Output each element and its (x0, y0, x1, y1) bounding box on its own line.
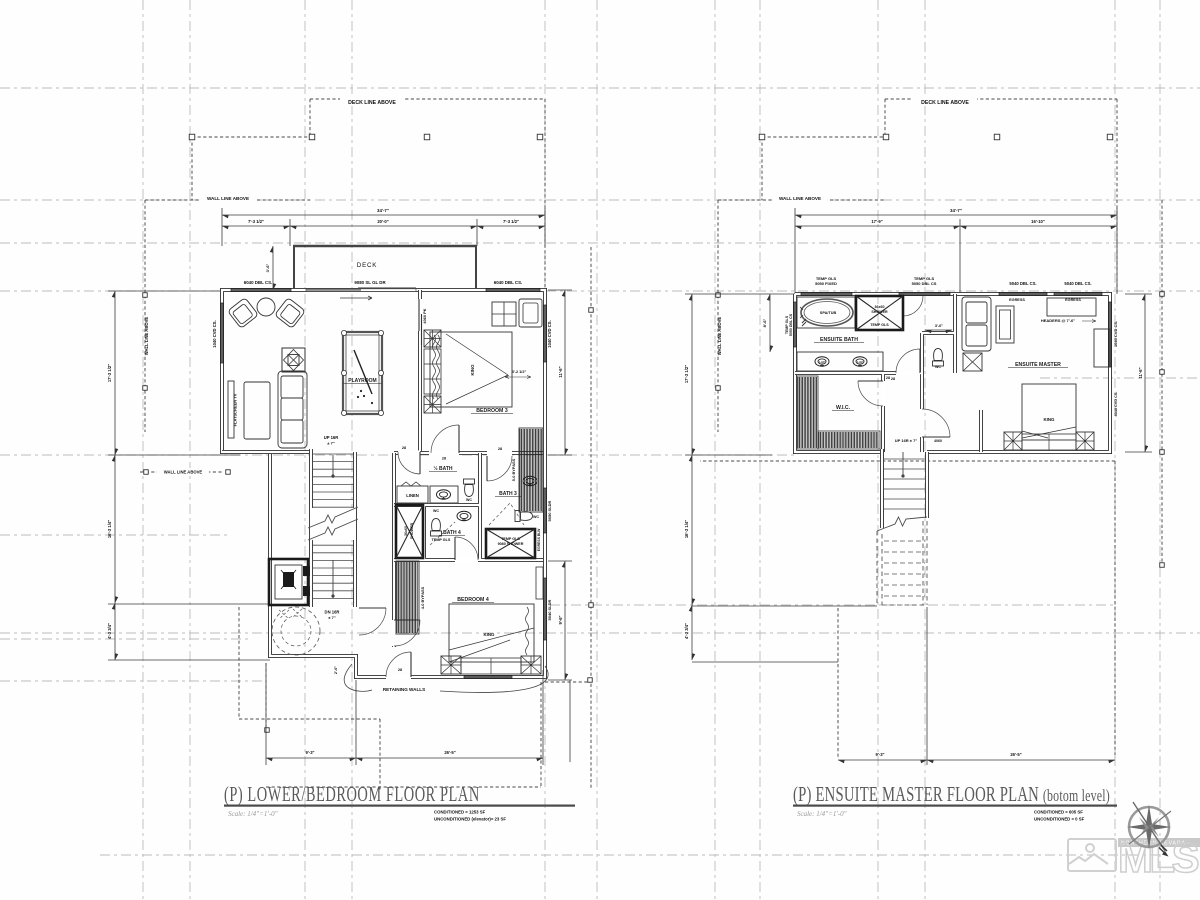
svg-text:28: 28 (442, 457, 446, 461)
svg-text:WC: WC (433, 509, 439, 513)
svg-text:WALL LINE ABOVE: WALL LINE ABOVE (779, 196, 821, 201)
svg-text:TEMP GLS: TEMP GLS (432, 538, 451, 542)
svg-text:9080 SL GL DR: 9080 SL GL DR (354, 280, 386, 285)
svg-text:5040 SLDR: 5040 SLDR (547, 599, 552, 620)
svg-text:WC: WC (533, 515, 539, 519)
svg-text:KING: KING (484, 632, 496, 637)
svg-text:9'-6": 9'-6" (558, 615, 563, 624)
svg-text:4'-3 3/4": 4'-3 3/4" (684, 623, 689, 639)
svg-text:28: 28 (498, 447, 502, 451)
svg-text:3'-6": 3'-6" (935, 324, 943, 328)
svg-text:3'-6": 3'-6" (265, 264, 270, 273)
svg-text:KING: KING (470, 364, 475, 376)
svg-text:36x60: 36x60 (404, 526, 408, 536)
svg-text:7'-3 1/2": 7'-3 1/2" (248, 219, 264, 224)
svg-text:4040 CVD CS.: 4040 CVD CS. (1114, 392, 1118, 417)
svg-text:EGRESS BLW: EGRESS BLW (537, 528, 541, 551)
svg-text:UP 16R ± 7": UP 16R ± 7" (895, 438, 918, 443)
svg-text:6040 DBL CS.: 6040 DBL CS. (244, 280, 272, 285)
svg-text:20'-0": 20'-0" (377, 219, 388, 224)
svg-text:FLATSCREEN TV: FLATSCREEN TV (233, 393, 238, 426)
svg-text:Scale: 1/4"=1'-0": Scale: 1/4"=1'-0" (797, 810, 847, 818)
svg-text:17'-3 1/2": 17'-3 1/2" (684, 365, 689, 383)
svg-text:5050 DBL CS: 5050 DBL CS (912, 281, 937, 286)
svg-text:17'-9": 17'-9" (871, 219, 882, 224)
svg-text:WALL LINE ABOVE: WALL LINE ABOVE (164, 470, 203, 475)
svg-text:5050 DBL CS: 5050 DBL CS (789, 313, 793, 336)
svg-text:TEMP GLS: TEMP GLS (501, 537, 520, 541)
svg-text:28: 28 (402, 446, 406, 450)
svg-text:WALL LINE ABOVE: WALL LINE ABOVE (717, 317, 722, 356)
svg-text:DECK LINE ABOVE: DECK LINE ABOVE (921, 100, 969, 106)
svg-text:Scale: 1/4"=1'-0": Scale: 1/4"=1'-0" (228, 810, 278, 818)
svg-text:34'-7": 34'-7" (950, 208, 962, 213)
svg-text:36x60: 36x60 (875, 305, 885, 309)
svg-text:LAV: LAV (819, 360, 825, 364)
svg-text:RETAINING WALLS: RETAINING WALLS (383, 687, 425, 692)
svg-text:DECK: DECK (357, 262, 377, 269)
svg-text:11'-6": 11'-6" (558, 366, 563, 377)
svg-text:5-0 BYPASS: 5-0 BYPASS (511, 458, 516, 481)
svg-text:TEMP GLS: TEMP GLS (870, 323, 889, 327)
svg-text:± 7": ± 7" (327, 441, 335, 446)
svg-text:5050 FIXED: 5050 FIXED (815, 281, 837, 286)
svg-text:4-0 BYPASS: 4-0 BYPASS (420, 586, 425, 609)
svg-text:16'-3 1/4": 16'-3 1/4" (107, 520, 112, 538)
svg-text:34'-7": 34'-7" (377, 208, 389, 213)
svg-text:5040 DBL CS.: 5040 DBL CS. (1064, 281, 1091, 286)
svg-text:1040 CVD CS.: 1040 CVD CS. (547, 320, 552, 347)
svg-text:WALL LINE ABOVE: WALL LINE ABOVE (144, 317, 149, 356)
svg-text:7'-3 1/2": 7'-3 1/2" (503, 219, 519, 224)
svg-text:28: 28 (886, 376, 890, 380)
svg-text:½ BATH: ½ BATH (433, 465, 452, 472)
svg-text:DECK LINE ABOVE: DECK LINE ABOVE (348, 100, 396, 106)
svg-text:5050 SLDR: 5050 SLDR (547, 500, 552, 521)
svg-text:8'-6": 8'-6" (762, 319, 767, 328)
svg-text:4'-3 3/4": 4'-3 3/4" (107, 623, 112, 639)
svg-text:16'-10": 16'-10" (1031, 219, 1045, 224)
svg-text:26'-5": 26'-5" (1010, 752, 1021, 757)
svg-text:1040 CVD CS.: 1040 CVD CS. (212, 320, 217, 347)
svg-text:16'-3 1/4": 16'-3 1/4" (684, 520, 689, 538)
svg-text:SPA/TUB: SPA/TUB (820, 311, 837, 315)
svg-text:WC: WC (466, 498, 472, 502)
svg-text:LINEN: LINEN (406, 493, 419, 498)
svg-text:4060 PK: 4060 PK (422, 308, 427, 323)
svg-text:2'-6": 2'-6" (334, 666, 338, 674)
svg-text:WC: WC (935, 365, 941, 369)
svg-text:5040 DBL CS.: 5040 DBL CS. (1009, 281, 1036, 286)
svg-text:KING: KING (1044, 417, 1056, 422)
svg-text:SHOWER: SHOWER (410, 523, 414, 540)
svg-text:WALL LINE ABOVE: WALL LINE ABOVE (207, 196, 249, 201)
svg-text:28: 28 (891, 377, 895, 381)
svg-text:SHOWER: SHOWER (871, 310, 888, 314)
svg-text:EGRESS: EGRESS (1009, 298, 1025, 302)
svg-text:(P) LOWER/BEDROOM FLOOR PLAN: (P) LOWER/BEDROOM FLOOR PLAN (224, 782, 480, 806)
svg-text:UNCONDITIONED = 0 SF: UNCONDITIONED = 0 SF (1034, 817, 1085, 822)
svg-text:17'-3 1/2": 17'-3 1/2" (107, 364, 112, 382)
svg-text:6040 DBL CS.: 6040 DBL CS. (494, 280, 522, 285)
svg-text:1040 CVD CS.: 1040 CVD CS. (1113, 321, 1118, 347)
svg-text:UNCONDITIONED (elevator)= 23 S: UNCONDITIONED (elevator)= 23 SF (434, 817, 506, 822)
svg-text:11'-6": 11'-6" (1138, 367, 1143, 378)
svg-text:CONDITIONED = 605 SF: CONDITIONED = 605 SF (1034, 810, 1083, 815)
svg-text:EGRESS: EGRESS (1065, 298, 1081, 302)
svg-text:DN 16R: DN 16R (325, 610, 340, 615)
svg-text:26'-5": 26'-5" (444, 750, 455, 755)
svg-text:LAV: LAV (857, 360, 863, 364)
svg-text:UP 16R: UP 16R (324, 435, 339, 440)
svg-text:(P) ENSUITE MASTER FLOOR PLAN: (P) ENSUITE MASTER FLOOR PLAN (botom lev… (793, 782, 1110, 806)
svg-text:HEADERS @ 7'-6": HEADERS @ 7'-6" (1041, 318, 1075, 323)
svg-text:3'-2 1/2": 3'-2 1/2" (512, 370, 527, 374)
svg-text:9'-3": 9'-3" (305, 750, 314, 755)
svg-text:4060: 4060 (934, 439, 942, 443)
svg-text:9080 SHOWER: 9080 SHOWER (498, 542, 524, 546)
svg-text:CONDITIONED = 1253 SF: CONDITIONED = 1253 SF (434, 810, 486, 815)
svg-text:28: 28 (398, 668, 402, 672)
svg-text:9'-3": 9'-3" (875, 752, 884, 757)
svg-text:± 7": ± 7" (328, 615, 336, 620)
